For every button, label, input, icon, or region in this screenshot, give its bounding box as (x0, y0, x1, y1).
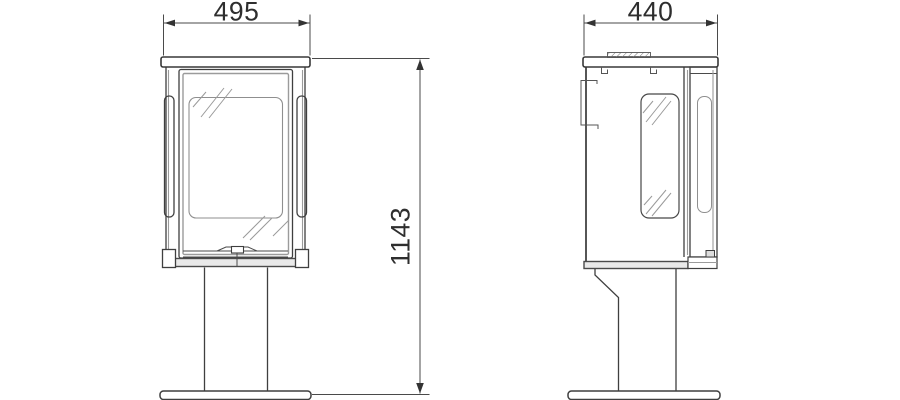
front-pedestal (205, 268, 268, 392)
front-view (160, 57, 311, 400)
side-glass-reflection-upper (643, 97, 671, 125)
front-door-latch (232, 247, 244, 254)
side-base-plate (568, 391, 720, 400)
side-top-plate (583, 57, 718, 67)
side-rear-bracket (581, 81, 598, 130)
dimension-overall-height: 1143 (312, 59, 430, 395)
front-glass-reflection-lower (243, 216, 289, 240)
side-bottom-band (584, 262, 688, 269)
front-top-plate (161, 57, 310, 67)
height-label: 1143 (386, 207, 416, 266)
side-view (568, 53, 720, 400)
side-door-profile-line (698, 97, 712, 213)
front-glass-reflection-upper (193, 88, 232, 118)
side-depth-arrow-left (585, 20, 596, 27)
height-arrow-top (416, 60, 424, 71)
side-latch-step (706, 251, 715, 258)
front-width-arrow-right (299, 20, 310, 27)
side-depth-arrow-right (706, 20, 717, 27)
side-top-clip-right (651, 67, 657, 74)
side-top-grille (608, 53, 651, 58)
front-base-plate (160, 391, 311, 400)
front-width-arrow-left (165, 20, 176, 27)
side-glass-window (641, 94, 679, 218)
side-glass-reflection-lower (644, 190, 671, 216)
front-bottom-band (166, 259, 305, 267)
side-depth-label: 440 (628, 0, 674, 27)
dimension-front-width: 495 (164, 0, 311, 56)
stove-dimension-drawing: 495 440 1143 (0, 0, 900, 400)
front-left-corner-block (163, 250, 176, 268)
front-door-glass (189, 98, 283, 219)
height-arrow-bottom (416, 383, 424, 394)
front-body-outline (166, 67, 305, 258)
side-top-clip-left (602, 67, 608, 74)
technical-drawing-page: 495 440 1143 (0, 0, 900, 400)
front-right-corner-block (296, 250, 309, 268)
dimension-side-depth: 440 (584, 0, 718, 56)
front-width-label: 495 (214, 0, 260, 27)
side-pedestal-rear (595, 269, 619, 391)
